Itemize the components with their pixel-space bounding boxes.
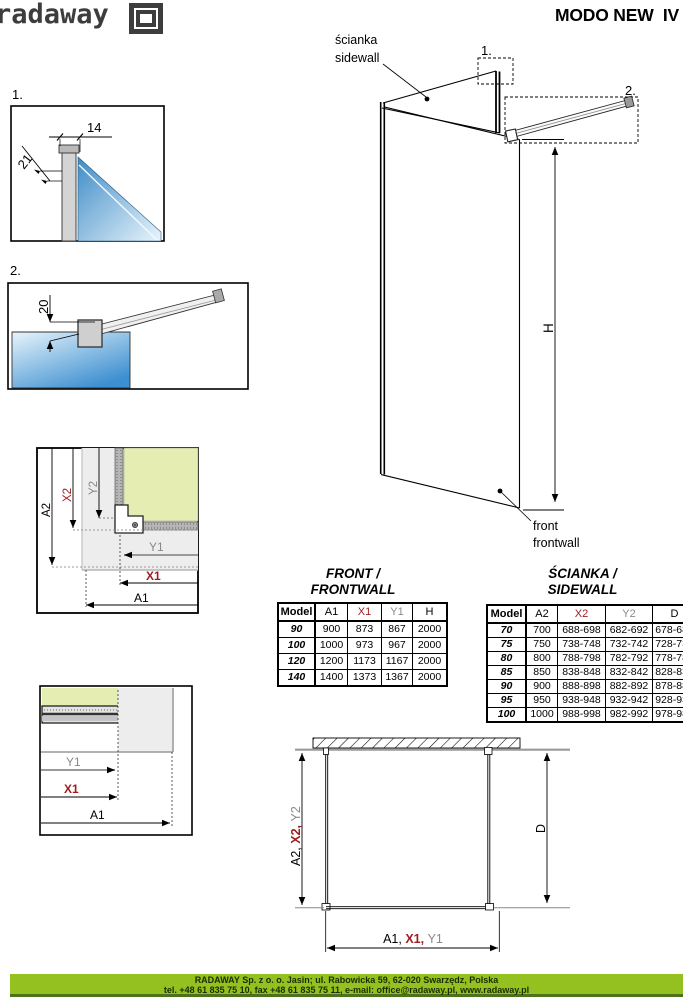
table-row: 80800788-798782-792778-788	[487, 652, 683, 666]
table-cell: 832-842	[606, 666, 653, 680]
detail2-glass-block	[12, 332, 130, 388]
table-cell: 900	[315, 621, 348, 638]
table-cell: 878-888	[653, 680, 683, 694]
table-cell: 90	[487, 680, 526, 694]
detail1-dim-14-label: 14	[87, 120, 101, 135]
table-cell: 888-898	[558, 680, 606, 694]
plan-front-label-y1: Y1	[428, 932, 443, 946]
plan-front-label-a1: A1,	[383, 932, 405, 946]
table-cell: 1367	[382, 670, 413, 687]
table-cell: 873	[348, 621, 382, 638]
profile-dim-y1-label: Y1	[66, 755, 81, 769]
column-header: Y2	[606, 605, 653, 623]
table-cell: 1373	[348, 670, 382, 687]
corner-glass-panel	[124, 448, 198, 521]
table-header-row: Model A1 X1 Y1 H	[278, 603, 447, 621]
table-cell: 90	[278, 621, 315, 638]
side-dimensions-table: Model A2 X2 Y2 D 70700688-698682-692678-…	[486, 604, 683, 723]
iso-drawing: ścianka sidewall 1. 2.	[290, 28, 683, 575]
table-cell: 850	[526, 666, 558, 680]
table-cell: 967	[382, 638, 413, 654]
table-row: 1001000988-998982-992978-988	[487, 708, 683, 723]
table-cell: 70	[487, 623, 526, 638]
table-row: 1201200117311672000	[278, 654, 447, 670]
column-header: X2	[558, 605, 606, 623]
table-cell: 800	[526, 652, 558, 666]
iso-frontwall-label: front frontwall	[498, 489, 580, 550]
plan-wall-hatch	[313, 738, 520, 748]
side-table-title-l2: SIDEWALL	[486, 582, 679, 598]
profile-wall-bar	[42, 706, 120, 723]
footer-contact: tel. +48 61 835 75 10, fax +48 61 835 75…	[10, 986, 683, 996]
corner-dim-x2-label: X2	[62, 488, 74, 502]
column-header: Model	[278, 603, 315, 621]
table-cell: 75	[487, 638, 526, 652]
front-table-title-l1: FRONT /	[277, 566, 429, 582]
svg-text:A2, X2, Y2: A2, X2, Y2	[289, 806, 303, 866]
table-cell: 838-848	[558, 666, 606, 680]
table-cell: 120	[278, 654, 315, 670]
table-cell: 900	[526, 680, 558, 694]
table-cell: 828-838	[653, 666, 683, 680]
radaway-logo-icon-inner	[136, 10, 156, 27]
table-cell: 778-788	[653, 652, 683, 666]
plan-right-panel	[485, 748, 493, 905]
table-cell: 2000	[413, 621, 448, 638]
plan-side-label-x2: X2,	[289, 822, 303, 844]
table-cell: 950	[526, 694, 558, 708]
table-cell: 700	[526, 623, 558, 638]
table-cell: 928-938	[653, 694, 683, 708]
table-row: 90900888-898882-892878-888	[487, 680, 683, 694]
side-table-title: ŚCIANKA / SIDEWALL	[486, 566, 679, 598]
plan-sidewall-panel	[322, 748, 330, 910]
corner-dim-x1-label: X1	[146, 569, 161, 583]
front-table-title: FRONT / FRONTWALL	[277, 566, 429, 598]
iso-ref2-label: 2.	[625, 83, 636, 98]
plan-dim-depth: D	[494, 753, 570, 908]
table-cell: 788-798	[558, 652, 606, 666]
profile-dim-x1-label: X1	[64, 782, 79, 796]
radaway-logo-icon	[129, 3, 163, 34]
table-row: 1401400137313672000	[278, 670, 447, 687]
plan-front-label-x1: X1,	[405, 932, 427, 946]
iso-ref1-label: 1.	[481, 43, 492, 58]
table-cell: 782-792	[606, 652, 653, 666]
front-dimensions-table: Model A1 X1 Y1 H 90900873867200010010009…	[277, 602, 448, 687]
table-cell: 1000	[315, 638, 348, 654]
footer-address: RADAWAY Sp. z o. o. Jasin; ul. Rabowicka…	[10, 974, 683, 986]
detail1-drawing: 14 21	[0, 85, 175, 245]
table-cell: 100	[487, 708, 526, 723]
iso-frontwall-panel	[381, 102, 520, 508]
footer-bar: RADAWAY Sp. z o. o. Jasin; ul. Rabowicka…	[10, 974, 683, 997]
corner-dim-y2-label: Y2	[88, 481, 100, 495]
table-cell: 1200	[315, 654, 348, 670]
table-cell: 867	[382, 621, 413, 638]
iso-dim-h: H	[522, 140, 564, 511]
table-cell: 2000	[413, 638, 448, 654]
detail1-wall-profile	[59, 145, 79, 241]
table-cell: 2000	[413, 670, 448, 687]
plan-dim-side: A2, X2, Y2	[289, 753, 324, 908]
column-header: X1	[348, 603, 382, 621]
iso-support-bar	[506, 96, 635, 142]
table-row: 95950938-948932-942928-938	[487, 694, 683, 708]
table-cell: 728-738	[653, 638, 683, 652]
table-cell: 688-698	[558, 623, 606, 638]
table-cell: 982-992	[606, 708, 653, 723]
table-cell: 882-892	[606, 680, 653, 694]
column-header: D	[653, 605, 683, 623]
svg-text:A1, X1, Y1: A1, X1, Y1	[383, 932, 443, 946]
table-cell: 988-998	[558, 708, 606, 723]
iso-sidewall-label-pl: ścianka	[335, 33, 377, 47]
table-cell: 140	[278, 670, 315, 687]
iso-dim-h-label: H	[541, 323, 556, 333]
iso-sidewall-label: ścianka sidewall	[335, 33, 429, 101]
datasheet-page: radaway MODO NEW IV 1. 14	[0, 0, 683, 1000]
corner-dim-a2-label: A2	[41, 503, 53, 517]
plan-dim-depth-label: D	[534, 824, 548, 833]
profile-detail-drawing: Y1 X1 A1	[30, 680, 200, 840]
table-cell: 95	[487, 694, 526, 708]
corner-detail-drawing: A2 X2 Y2 Y1 X1 A1	[30, 440, 205, 618]
plan-side-label-a2: A2,	[289, 844, 303, 866]
table-cell: 938-948	[558, 694, 606, 708]
table-cell: 750	[526, 638, 558, 652]
column-header: Model	[487, 605, 526, 623]
radaway-logo-text: radaway	[0, 0, 109, 30]
table-row: 85850838-848832-842828-838	[487, 666, 683, 680]
detail2-bracket	[78, 320, 102, 347]
column-header: H	[413, 603, 448, 621]
page-title: MODO NEW IV	[555, 5, 679, 26]
detail2-drawing: 20	[0, 260, 255, 395]
table-cell: 80	[487, 652, 526, 666]
corner-dim-a1-label: A1	[134, 591, 149, 605]
table-row: 70700688-698682-692678-688	[487, 623, 683, 638]
iso-sidewall-label-en: sidewall	[335, 51, 379, 65]
column-header: A1	[315, 603, 348, 621]
side-table-title-l1: ŚCIANKA /	[486, 566, 679, 582]
detail2-dim-20-label: 20	[36, 300, 51, 314]
table-cell: 1000	[526, 708, 558, 723]
table-cell: 973	[348, 638, 382, 654]
plan-side-label-y2: Y2	[289, 806, 303, 821]
table-cell: 678-688	[653, 623, 683, 638]
table-cell: 1167	[382, 654, 413, 670]
table-cell: 978-988	[653, 708, 683, 723]
table-cell: 738-748	[558, 638, 606, 652]
table-row: 10010009739672000	[278, 638, 447, 654]
table-cell: 1173	[348, 654, 382, 670]
plan-drawing: A2, X2, Y2 D A1, X1, Y1	[285, 735, 580, 962]
table-cell: 100	[278, 638, 315, 654]
corner-dim-y1-label: Y1	[149, 540, 164, 554]
column-header: A2	[526, 605, 558, 623]
table-cell: 682-692	[606, 623, 653, 638]
table-cell: 932-942	[606, 694, 653, 708]
table-cell: 1400	[315, 670, 348, 687]
profile-glass-panel	[42, 688, 118, 707]
table-row: 909008738672000	[278, 621, 447, 638]
column-header: Y1	[382, 603, 413, 621]
iso-frontwall-label-l1: front	[533, 519, 559, 533]
table-cell: 2000	[413, 654, 448, 670]
table-header-row: Model A2 X2 Y2 D	[487, 605, 683, 623]
iso-sidewall-panel	[382, 71, 500, 133]
table-row: 75750738-748732-742728-738	[487, 638, 683, 652]
plan-frontwall-panel	[326, 904, 494, 911]
table-cell: 85	[487, 666, 526, 680]
plan-dim-front: A1, X1, Y1	[326, 911, 500, 952]
table-cell: 732-742	[606, 638, 653, 652]
profile-dim-a1-label: A1	[90, 808, 105, 822]
iso-frontwall-label-l2: frontwall	[533, 536, 580, 550]
front-table-title-l2: FRONTWALL	[277, 582, 429, 598]
